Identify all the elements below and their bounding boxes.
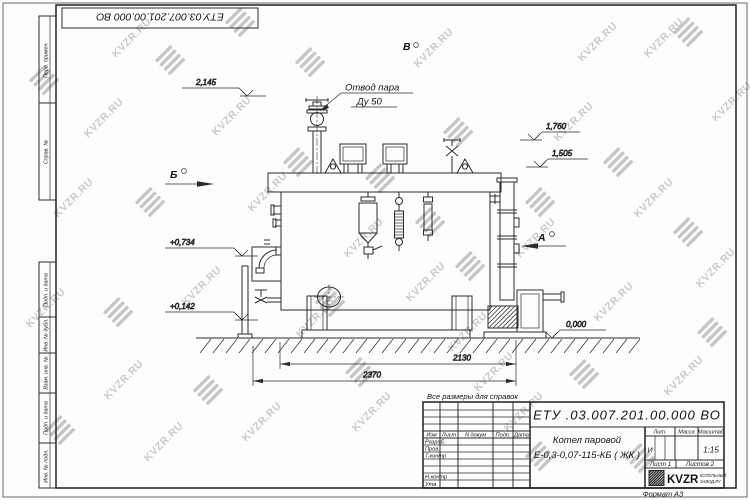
svg-text:1,505: 1,505 xyxy=(552,149,573,158)
tb-logo-text: KVZR xyxy=(667,474,699,486)
watermark-text: KVZR.RU xyxy=(514,216,558,260)
watermark-layer: KVZR.RUKVZR.RUKVZR.RUKVZR.RUKVZR.RUKVZR.… xyxy=(24,7,750,474)
th-izm: Изм xyxy=(426,433,437,439)
water-level-gauge xyxy=(395,192,404,251)
watermark-text: KVZR.RU xyxy=(632,176,676,220)
watermark-logo xyxy=(697,317,728,348)
flue-duct xyxy=(490,178,519,300)
tb-sheet: Лист 1 xyxy=(649,461,671,468)
watermark-text: KVZR.RU xyxy=(350,390,394,434)
tr-prov: Пров. xyxy=(425,447,440,453)
watermark-logo xyxy=(569,359,600,390)
watermark-logo xyxy=(135,187,166,218)
watermark-text: KVZR.RU xyxy=(82,96,126,140)
tb-scale: 1:15 xyxy=(703,446,719,455)
col-inv-dubl: Инв. № дубл. xyxy=(44,318,50,351)
format-label: Формат А3 xyxy=(643,490,684,499)
th-data: Дата xyxy=(513,433,529,439)
watermark-logo xyxy=(193,375,224,406)
title-block: Изм Лист N докум Подп. Дата Разраб. Пров… xyxy=(423,402,726,499)
th-podp: Подп. xyxy=(496,433,511,439)
watermark-logo xyxy=(673,217,704,248)
watermark-logo xyxy=(415,207,446,238)
elevation-2145: 2,145 xyxy=(182,78,266,96)
support-frame xyxy=(302,296,472,338)
tb-product-1: Котел паровой xyxy=(553,435,622,446)
drawing-canvas: KVZR.RUKVZR.RUKVZR.RUKVZR.RUKVZR.RUKVZR.… xyxy=(0,0,750,500)
watermark-text: KVZR.RU xyxy=(240,400,284,444)
tb-doc-number: ЕТУ .03.007.201.00.000 ВО xyxy=(533,408,721,423)
watermark-logo xyxy=(455,251,486,282)
watermark-text: KVZR.RU xyxy=(142,420,186,464)
col-inv-podl: Инв. № подл. xyxy=(44,449,50,482)
motor-hatch xyxy=(488,306,518,328)
watermark-logo xyxy=(525,187,556,218)
th-massa: Масса xyxy=(678,430,695,436)
watermark-text: KVZR.RU xyxy=(404,260,448,304)
th-ndokum: N докум xyxy=(465,433,486,439)
svg-text:0,000: 0,000 xyxy=(566,320,587,329)
elevation-0000: 0,000 xyxy=(546,320,606,338)
sheet-frame: ЕТУ.03.007.201.00.000 ВО Перв. примен. С… xyxy=(3,3,747,497)
watermark-text: KVZR.RU xyxy=(472,350,516,394)
top-valve-boxes xyxy=(340,144,407,173)
watermark-text: KVZR.RU xyxy=(412,26,456,70)
col-perv-primen: Перв. примен. xyxy=(44,42,50,78)
watermark-text: KVZR.RU xyxy=(710,80,750,124)
svg-text:А: А xyxy=(537,232,546,244)
top-stamp: ЕТУ.03.007.201.00.000 ВО xyxy=(62,8,258,28)
col-podp-data-1: Подп. и дата xyxy=(44,273,50,307)
steam-outlet-callout: Отвод пара Ду 50 xyxy=(320,83,413,112)
fan-motor-unit xyxy=(484,290,564,338)
watermark-logo xyxy=(225,7,256,38)
col-sprav-no: Справ. № xyxy=(44,140,50,165)
tr-razrab: Разраб. xyxy=(425,440,445,446)
watermark-text: KVZR.RU xyxy=(662,354,706,398)
front-left-fittings xyxy=(238,205,281,338)
frame-column-upper: Перв. примен. Справ. № xyxy=(39,16,56,200)
watermark-logo xyxy=(603,147,634,178)
page-border xyxy=(3,3,747,497)
watermark-logo xyxy=(295,47,326,78)
tb-logo-sub1: КОТЕЛЬНЫЙ xyxy=(700,473,726,478)
watermark-text: KVZR.RU xyxy=(210,94,254,138)
drawing-sheet: KVZR.RUKVZR.RUKVZR.RUKVZR.RUKVZR.RUKVZR.… xyxy=(0,0,750,500)
th-masshtab: Масштаб xyxy=(698,430,725,436)
svg-text:1,760: 1,760 xyxy=(546,122,567,131)
svg-text:+0,142: +0,142 xyxy=(170,302,195,311)
reference-note: Все размеры для справок xyxy=(427,392,518,401)
svg-text:2370: 2370 xyxy=(362,371,381,380)
logo-hatch-mark xyxy=(649,471,664,486)
tb-sheets: Листов 2 xyxy=(685,461,715,468)
svg-text:В: В xyxy=(403,41,411,53)
watermark-logo xyxy=(155,45,186,76)
view-marker-b: Б xyxy=(165,169,214,187)
view-marker-v: В xyxy=(403,41,418,53)
watermark-logo xyxy=(443,117,474,148)
tr-utv: Утв. xyxy=(424,482,438,488)
svg-text:+0,734: +0,734 xyxy=(170,238,195,247)
elevation-0142: +0,142 xyxy=(165,302,258,320)
tr-nkontr: Н.контр xyxy=(425,475,447,481)
tb-product-2: Е-0,3-0,07-115-КБ ( ЖК ) xyxy=(534,450,640,461)
th-list: Лист xyxy=(441,433,457,439)
svg-text:2,145: 2,145 xyxy=(195,78,217,87)
watermark-text: KVZR.RU xyxy=(592,280,636,324)
elevation-0734: +0,734 xyxy=(165,238,258,256)
watermark-text: KVZR.RU xyxy=(694,246,738,290)
col-vzam-inv: Взам. инв. № xyxy=(44,356,50,390)
svg-text:Б: Б xyxy=(170,169,178,181)
svg-text:2130: 2130 xyxy=(452,354,471,363)
top-stamp-doc-number: ЕТУ.03.007.201.00.000 ВО xyxy=(96,11,224,23)
boiler-drawing xyxy=(196,96,640,353)
tb-logo-sub2: ЗАВОД.РУ xyxy=(700,479,722,484)
watermark-text: KVZR.RU xyxy=(52,176,96,220)
tb-lit-value: И xyxy=(647,446,653,455)
col-podp-data-2: Подп. и дата xyxy=(44,401,50,435)
watermark-text: KVZR.RU xyxy=(576,20,620,64)
elevation-1505: 1,505 xyxy=(526,149,588,167)
ground-hatch xyxy=(200,339,640,353)
tr-tkontr: Т.контр xyxy=(425,454,446,460)
steam-callout-line2: Ду 50 xyxy=(356,97,382,108)
th-lit: Лит. xyxy=(652,430,666,436)
boiler-body xyxy=(268,173,501,310)
watermark-text: KVZR.RU xyxy=(102,358,146,402)
watermark-logo xyxy=(103,297,134,328)
kvzr-logo: KVZR КОТЕЛЬНЫЙ ЗАВОД.РУ xyxy=(649,471,726,487)
steam-callout-line1: Отвод пара xyxy=(345,83,399,94)
